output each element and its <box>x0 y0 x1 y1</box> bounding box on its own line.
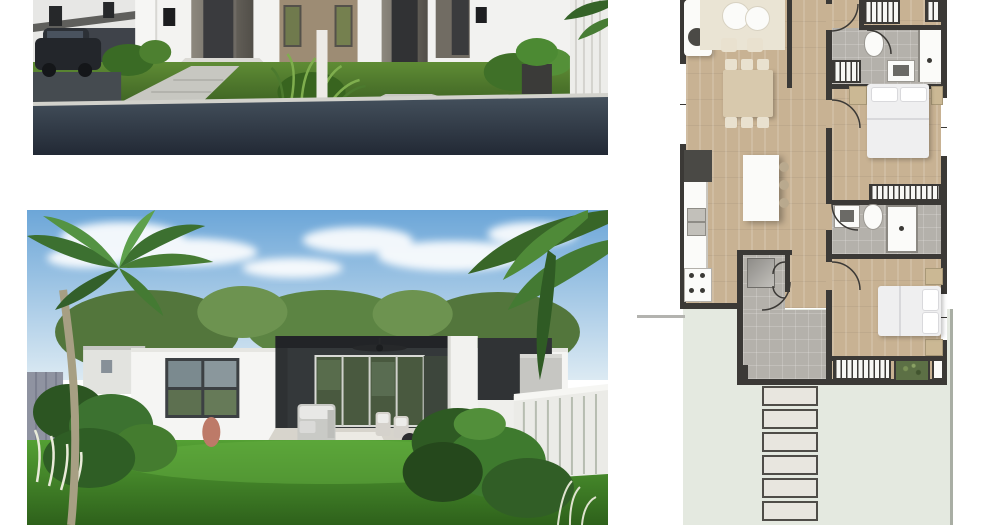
wall-light-icon <box>476 7 487 23</box>
window-icon <box>101 360 112 373</box>
flowering-plant <box>202 417 220 447</box>
front-door <box>203 0 235 58</box>
real-estate-composite <box>0 0 1000 525</box>
road <box>33 97 608 155</box>
window-icon <box>103 2 114 18</box>
door-swing-arcs <box>637 0 953 525</box>
backyard-render <box>27 210 608 525</box>
wall-light-icon <box>163 8 175 26</box>
planter-pot <box>522 64 552 94</box>
window-icon <box>285 7 299 45</box>
door <box>452 0 469 55</box>
window-icon <box>49 6 62 26</box>
floor-plan <box>637 0 953 525</box>
street-view-render <box>33 0 608 155</box>
window-icon <box>337 7 351 45</box>
left-window <box>165 358 239 418</box>
